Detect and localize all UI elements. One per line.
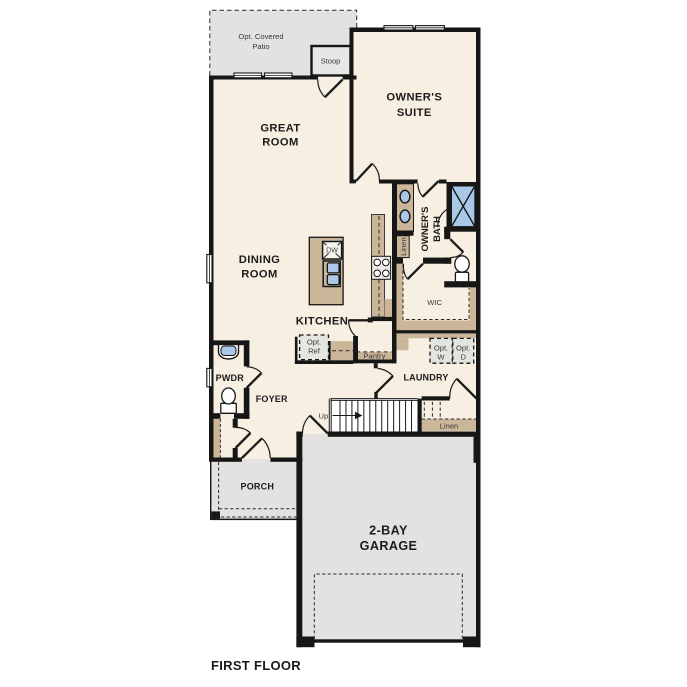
svg-text:Pantry: Pantry (363, 351, 385, 360)
svg-text:KITCHEN: KITCHEN (296, 316, 349, 328)
svg-text:Stoop: Stoop (321, 57, 341, 66)
svg-text:Up: Up (319, 411, 329, 420)
svg-text:PORCH: PORCH (241, 482, 275, 492)
svg-text:Ref: Ref (308, 347, 321, 356)
svg-text:Opt.: Opt. (307, 338, 321, 347)
svg-text:Linen: Linen (399, 237, 408, 256)
svg-text:Patio: Patio (252, 42, 269, 51)
svg-text:D: D (460, 352, 466, 361)
svg-text:BATH: BATH (432, 216, 443, 242)
svg-text:W: W (437, 352, 445, 361)
svg-text:ROOM: ROOM (262, 137, 298, 149)
svg-text:ROOM: ROOM (241, 269, 277, 281)
svg-text:2-BAY: 2-BAY (369, 524, 408, 538)
svg-text:LAUNDRY: LAUNDRY (403, 372, 448, 382)
svg-text:WIC: WIC (427, 298, 442, 307)
svg-text:GREAT: GREAT (260, 123, 300, 135)
svg-text:FOYER: FOYER (256, 394, 288, 404)
svg-text:OWNER'S: OWNER'S (420, 206, 431, 251)
svg-text:SUITE: SUITE (397, 107, 432, 119)
svg-text:Linen: Linen (440, 422, 459, 431)
svg-text:GARAGE: GARAGE (360, 539, 418, 553)
svg-text:DW: DW (326, 247, 338, 254)
svg-text:OWNER'S: OWNER'S (386, 92, 442, 104)
svg-text:PWDR: PWDR (216, 373, 245, 383)
svg-text:Opt. Covered: Opt. Covered (238, 32, 283, 41)
svg-text:DINING: DINING (239, 254, 281, 266)
svg-text:Opt.: Opt. (434, 344, 448, 353)
svg-text:Opt.: Opt. (456, 344, 470, 353)
svg-text:FIRST FLOOR: FIRST FLOOR (211, 658, 301, 673)
